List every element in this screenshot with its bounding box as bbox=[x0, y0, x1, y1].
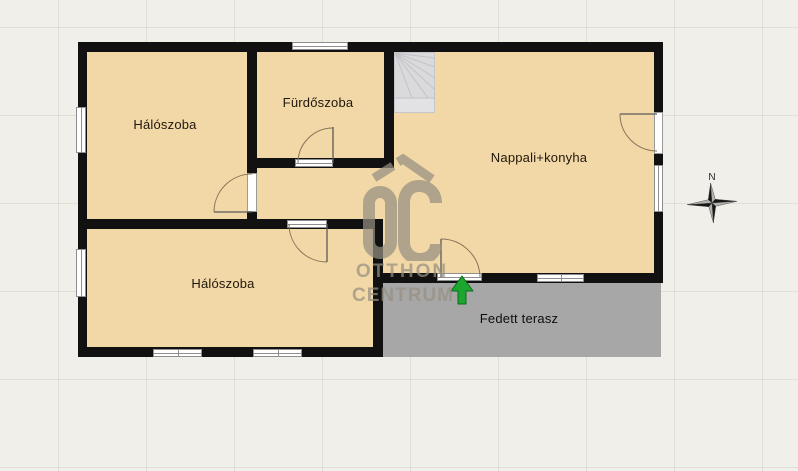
room-label-living-kitchen: Nappali+konyha bbox=[491, 150, 587, 165]
wall bbox=[373, 219, 383, 357]
wall bbox=[78, 347, 383, 357]
wall bbox=[373, 273, 663, 283]
window bbox=[76, 249, 86, 297]
window bbox=[292, 42, 348, 50]
wall bbox=[654, 42, 663, 283]
window bbox=[654, 165, 663, 212]
room-label-bedroom2: Hálószoba bbox=[191, 276, 254, 291]
wall bbox=[78, 42, 87, 357]
window bbox=[537, 274, 584, 282]
compass-star bbox=[686, 181, 739, 224]
door-opening bbox=[295, 159, 333, 167]
floorplan-canvas: Hálószoba Fürdőszoba Nappali+konyha Háló… bbox=[0, 0, 798, 471]
door-opening bbox=[247, 173, 257, 212]
window bbox=[76, 107, 86, 153]
window bbox=[253, 349, 302, 357]
window bbox=[153, 349, 202, 357]
wall bbox=[78, 42, 663, 52]
room-label-terrace: Fedett terasz bbox=[480, 311, 558, 326]
wall bbox=[78, 219, 383, 229]
staircase-landing bbox=[395, 98, 434, 112]
entrance-arrow-icon bbox=[450, 274, 476, 306]
compass-icon: N bbox=[684, 166, 742, 228]
room-label-bathroom: Fürdőszoba bbox=[283, 95, 354, 110]
door-opening bbox=[287, 220, 327, 228]
door-opening bbox=[654, 112, 663, 154]
room-label-bedroom1: Hálószoba bbox=[133, 117, 196, 132]
compass-north-label: N bbox=[708, 172, 715, 183]
wall bbox=[384, 42, 394, 168]
staircase bbox=[394, 52, 435, 113]
